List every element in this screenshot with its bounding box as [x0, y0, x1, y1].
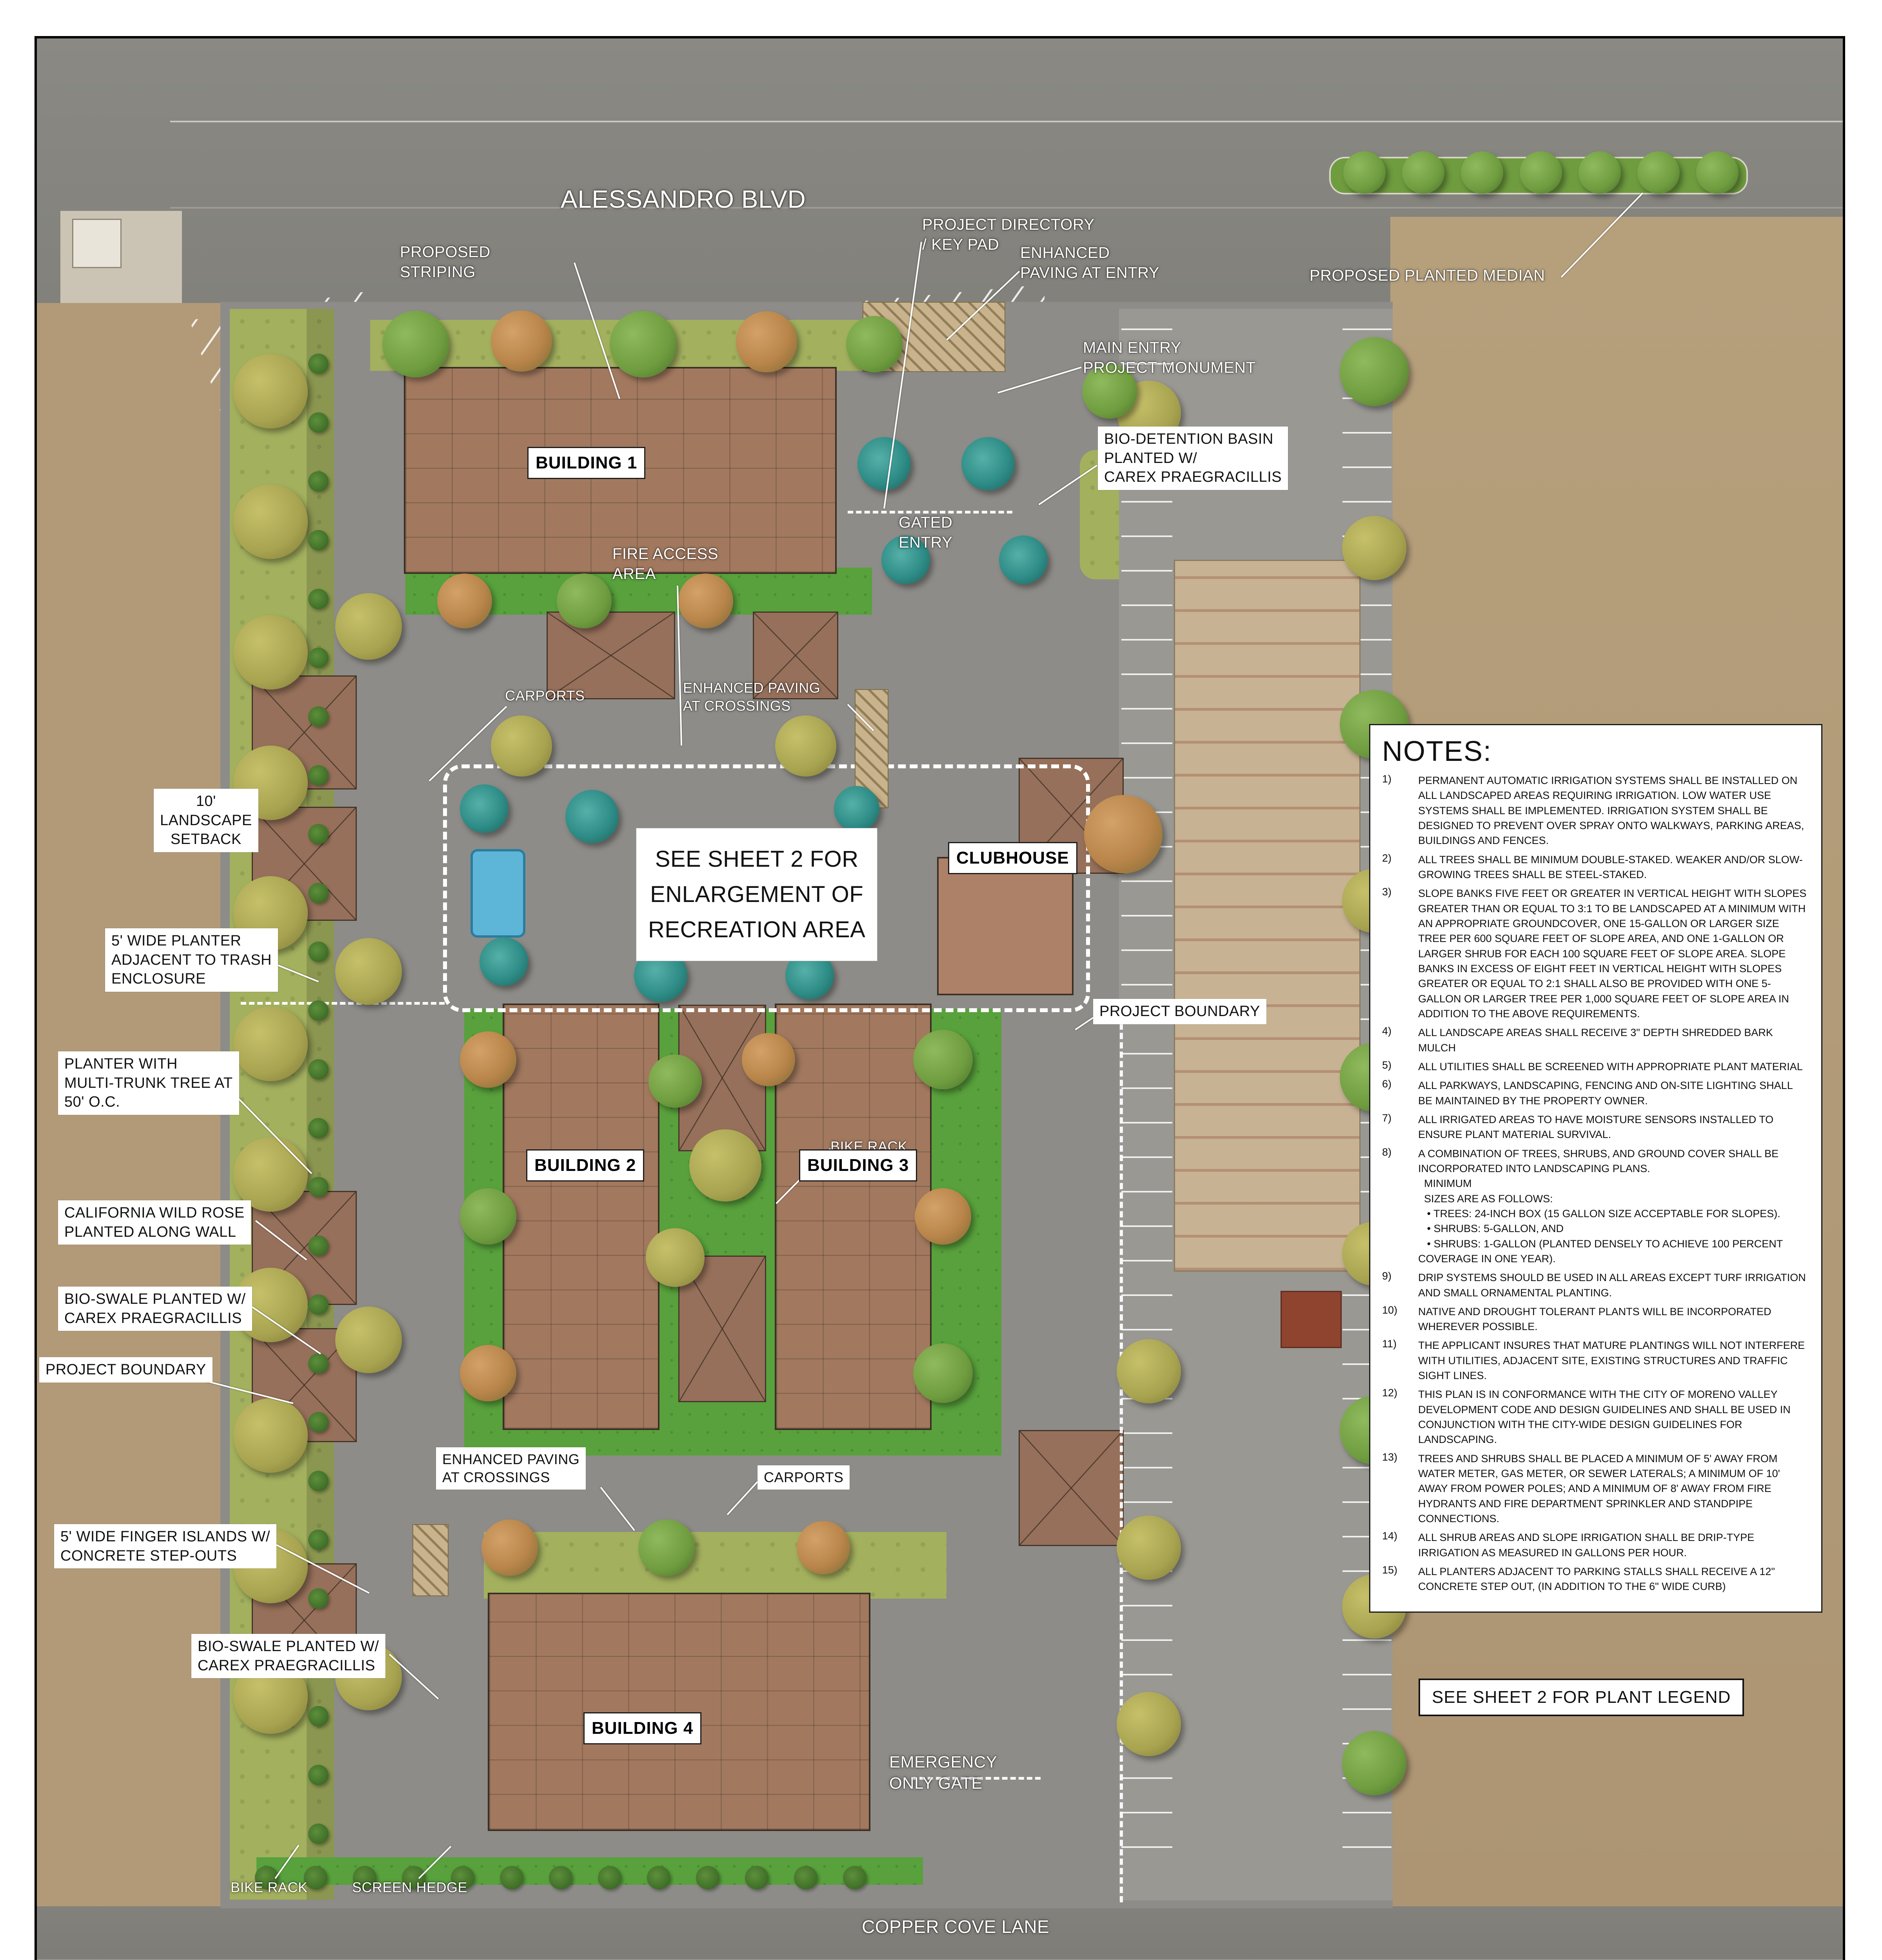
- shrub: [308, 1294, 329, 1315]
- shrub: [308, 1765, 329, 1785]
- shrub: [745, 1866, 768, 1889]
- tree: [335, 1307, 402, 1373]
- shrub: [308, 648, 329, 668]
- palm-tree: [634, 949, 687, 1002]
- palm-tree: [460, 784, 509, 833]
- leader-line: [946, 271, 1020, 341]
- tree: [775, 715, 836, 777]
- tree: [1343, 151, 1386, 194]
- shrub: [308, 1236, 329, 1256]
- tree: [1579, 151, 1621, 194]
- palm-tree: [999, 535, 1048, 584]
- note-item: 9)DRIP SYSTEMS SHOULD BE USED IN ALL ARE…: [1382, 1270, 1809, 1300]
- tree: [233, 1007, 308, 1081]
- tree: [646, 1228, 705, 1287]
- tree: [610, 311, 676, 377]
- tree: [689, 1129, 761, 1201]
- tree: [1342, 1731, 1406, 1795]
- tree: [1461, 151, 1503, 194]
- shrub: [402, 1866, 425, 1889]
- shrub: [353, 1866, 376, 1889]
- tree: [1084, 795, 1163, 873]
- tree: [460, 1345, 516, 1401]
- palm-tree: [881, 535, 930, 584]
- leader-line: [255, 1220, 307, 1260]
- shrub: [308, 1412, 329, 1432]
- tree: [233, 746, 308, 820]
- tree: [233, 615, 308, 690]
- tree: [233, 1398, 308, 1473]
- note-item: 6)ALL PARKWAYS, LANDSCAPING, FENCING AND…: [1382, 1078, 1809, 1108]
- tree: [233, 1268, 308, 1342]
- notes-title: NOTES:: [1382, 735, 1809, 768]
- tree: [678, 573, 733, 628]
- shrub: [598, 1866, 621, 1889]
- tree: [1340, 337, 1409, 406]
- shrub: [308, 706, 329, 727]
- tree: [915, 1188, 971, 1245]
- shrub: [308, 942, 329, 962]
- leader-line: [274, 1845, 299, 1879]
- shrub: [308, 589, 329, 609]
- tree: [460, 1031, 516, 1088]
- shrub: [500, 1866, 523, 1889]
- palm-tree: [785, 951, 834, 1000]
- shrub: [308, 412, 329, 433]
- note-item: 13)TREES AND SHRUBS SHALL BE PLACED A MI…: [1382, 1451, 1809, 1526]
- tree: [233, 354, 308, 428]
- palm-tree: [834, 786, 879, 831]
- palm-tree: [480, 937, 528, 986]
- shrub: [549, 1866, 572, 1889]
- tree: [233, 1529, 308, 1603]
- leader-line: [776, 1148, 831, 1204]
- tree: [335, 593, 402, 660]
- tree: [1402, 151, 1444, 194]
- note-item: 4)ALL LANDSCAPE AREAS SHALL RECEIVE 3" D…: [1382, 1025, 1809, 1055]
- palm-tree: [565, 790, 619, 843]
- note-item: 15)ALL PLANTERS ADJACENT TO PARKING STAL…: [1382, 1564, 1809, 1594]
- shrub: [647, 1866, 670, 1889]
- tree: [797, 1521, 850, 1574]
- tree: [913, 1030, 973, 1089]
- shrub: [308, 1118, 329, 1138]
- tree: [491, 715, 552, 777]
- tree: [557, 573, 612, 628]
- tree: [736, 311, 797, 372]
- note-item: 11)THE APPLICANT INSURES THAT MATURE PLA…: [1382, 1338, 1809, 1383]
- note-item: 3)SLOPE BANKS FIVE FEET OR GREATER IN VE…: [1382, 886, 1809, 1021]
- note-item: 5)ALL UTILITIES SHALL BE SCREENED WITH A…: [1382, 1059, 1809, 1074]
- shrub: [308, 1177, 329, 1197]
- shrub: [308, 354, 329, 374]
- leader-line: [181, 1374, 294, 1404]
- leader-line: [997, 367, 1081, 394]
- tree: [649, 1054, 702, 1108]
- tree: [1117, 1339, 1181, 1403]
- tree: [491, 310, 552, 372]
- leader-line: [1039, 465, 1097, 505]
- leader-line: [600, 1487, 635, 1531]
- shrub: [308, 471, 329, 492]
- shrub: [308, 1588, 329, 1609]
- tree: [460, 1188, 516, 1245]
- tree: [481, 1519, 538, 1576]
- note-item: 7)ALL IRRIGATED AREAS TO HAVE MOISTURE S…: [1382, 1112, 1809, 1142]
- tree: [437, 573, 492, 628]
- tree: [1117, 1692, 1181, 1756]
- tree: [638, 1519, 695, 1576]
- tree: [233, 876, 308, 951]
- tree: [335, 938, 402, 1005]
- tree: [233, 1137, 308, 1212]
- palm-tree: [961, 437, 1015, 490]
- leader-line: [275, 964, 318, 982]
- shrub: [308, 1706, 329, 1726]
- leader-line: [727, 1481, 758, 1515]
- tree: [233, 485, 308, 559]
- notes-list: 1)PERMANENT AUTOMATIC IRRIGATION SYSTEMS…: [1382, 773, 1809, 1594]
- plan-sheet: NOTES: 1)PERMANENT AUTOMATIC IRRIGATION …: [0, 0, 1882, 1960]
- note-item: 12)THIS PLAN IS IN CONFORMANCE WITH THE …: [1382, 1387, 1809, 1447]
- leader-line: [1561, 192, 1644, 278]
- shrub: [308, 530, 329, 550]
- note-item: 2)ALL TREES SHALL BE MINIMUM DOUBLE-STAK…: [1382, 852, 1809, 882]
- tree: [846, 316, 903, 372]
- leader-line: [418, 1846, 452, 1879]
- tree: [1342, 516, 1406, 580]
- shrub: [308, 1059, 329, 1080]
- shrub: [308, 1000, 329, 1021]
- shrub: [308, 883, 329, 903]
- note-item: 8)A COMBINATION OF TREES, SHRUBS, AND GR…: [1382, 1146, 1809, 1267]
- leader-line: [847, 704, 874, 731]
- shrub: [308, 765, 329, 786]
- shrub: [308, 1353, 329, 1374]
- tree: [233, 1659, 308, 1734]
- shrub: [308, 1471, 329, 1491]
- shrub: [304, 1866, 327, 1889]
- tree: [1696, 151, 1738, 194]
- tree: [1082, 364, 1137, 419]
- palm-tree: [857, 437, 911, 490]
- notes-panel: NOTES: 1)PERMANENT AUTOMATIC IRRIGATION …: [1369, 724, 1822, 1613]
- shrub: [308, 1824, 329, 1844]
- shrub: [794, 1866, 817, 1889]
- tree: [1637, 151, 1680, 194]
- tree: [335, 1644, 402, 1710]
- shrub: [451, 1866, 474, 1889]
- tree: [382, 311, 449, 377]
- leader-line: [1075, 1017, 1094, 1030]
- shrub: [308, 1647, 329, 1668]
- tree: [742, 1033, 795, 1086]
- note-item: 10)NATIVE AND DROUGHT TOLERANT PLANTS WI…: [1382, 1304, 1809, 1334]
- note-item: 1)PERMANENT AUTOMATIC IRRIGATION SYSTEMS…: [1382, 773, 1809, 848]
- shrub: [308, 1530, 329, 1550]
- tree: [1117, 1515, 1181, 1580]
- shrub: [843, 1866, 867, 1889]
- shrub: [308, 824, 329, 844]
- note-item: 14)ALL SHRUB AREAS AND SLOPE IRRIGATION …: [1382, 1530, 1809, 1560]
- tree: [1520, 151, 1562, 194]
- tree: [913, 1343, 973, 1403]
- shrub: [696, 1866, 719, 1889]
